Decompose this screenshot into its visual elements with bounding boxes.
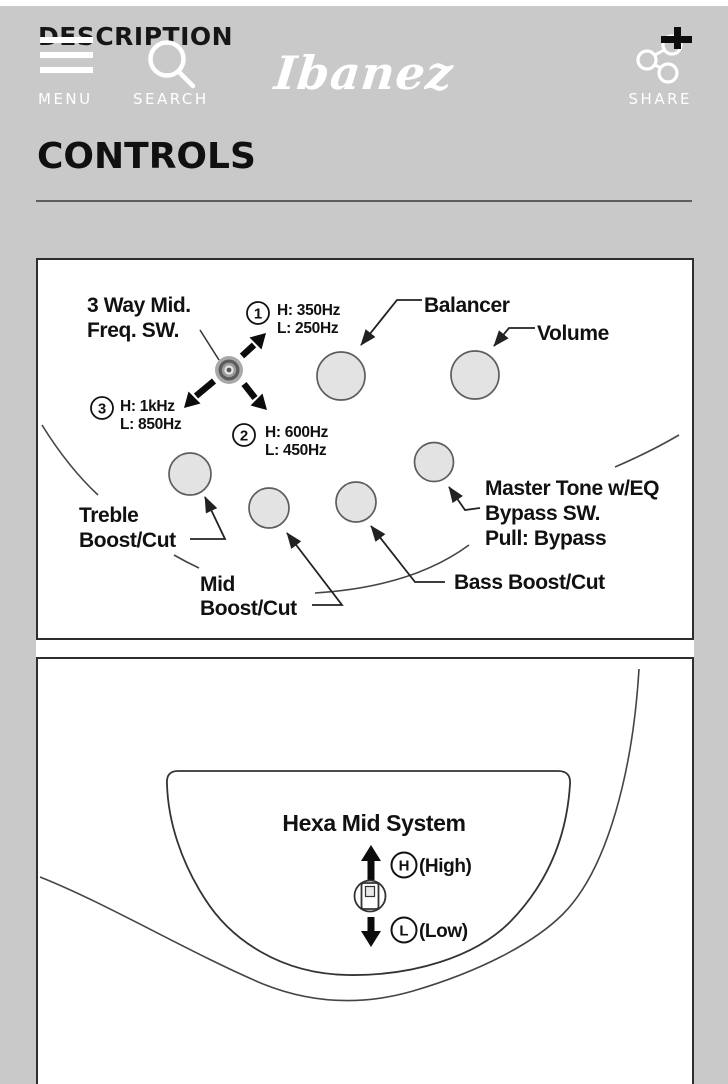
- treble-knob: [169, 453, 211, 495]
- balancer-knob: [317, 352, 365, 400]
- svg-text:(Low): (Low): [419, 921, 468, 942]
- search-button-label[interactable]: SEARCH: [133, 90, 209, 108]
- share-icon[interactable]: [638, 36, 681, 82]
- up-arrow: [361, 845, 381, 880]
- balancer-label: Balancer: [424, 294, 510, 317]
- controls-diagram-panel: 1 H: 350Hz L: 250Hz 3 H: 1kHz L: 850Hz 2…: [36, 258, 694, 640]
- position-1: 1 H: 350Hz L: 250Hz: [247, 302, 341, 337]
- share-button-label[interactable]: SHARE: [629, 90, 692, 108]
- position-3: 3 H: 1kHz L: 850Hz: [91, 397, 182, 433]
- svg-text:Freq. SW.: Freq. SW.: [87, 319, 179, 342]
- switch-leader-line: [200, 330, 219, 360]
- position-2: 2 H: 600Hz L: 450Hz: [233, 424, 329, 459]
- bass-knob: [336, 482, 376, 522]
- svg-text:Bypass SW.: Bypass SW.: [485, 502, 600, 525]
- hexa-mid-diagram: Hexa Mid System H (High): [38, 659, 692, 1082]
- down-arrow: [361, 917, 381, 947]
- bass-label: Bass Boost/Cut: [454, 571, 605, 594]
- svg-text:L: L: [399, 923, 408, 940]
- master-tone-knob: [415, 443, 454, 482]
- svg-text:L: 250Hz: L: 250Hz: [277, 320, 339, 337]
- mid-label: Mid: [200, 573, 235, 596]
- high-marker: H (High): [392, 853, 472, 878]
- ibanez-logo[interactable]: Ibanez: [263, 46, 465, 100]
- page-title: CONTROLS: [37, 136, 256, 177]
- volume-label: Volume: [537, 322, 609, 345]
- controls-diagram: 1 H: 350Hz L: 250Hz 3 H: 1kHz L: 850Hz 2…: [38, 260, 692, 638]
- hexa-mid-panel: Hexa Mid System H (High): [36, 657, 694, 1084]
- svg-text:H: 1kHz: H: 1kHz: [120, 398, 175, 415]
- menu-button-label[interactable]: MENU: [38, 90, 93, 108]
- master-tone-label: Master Tone w/EQ: [485, 477, 659, 500]
- freq-switch-label: 3 Way Mid.: [87, 294, 191, 317]
- svg-text:Boost/Cut: Boost/Cut: [200, 597, 297, 620]
- treble-label: Treble: [79, 504, 138, 527]
- mid-select-switch-icon: [355, 881, 386, 912]
- content-column: 1 H: 350Hz L: 250Hz 3 H: 1kHz L: 850Hz 2…: [36, 258, 694, 1080]
- svg-text:H: H: [399, 858, 410, 875]
- svg-text:H: 600Hz: H: 600Hz: [265, 424, 329, 441]
- mid-knob: [249, 488, 289, 528]
- leader-lines: [190, 300, 535, 605]
- low-marker: L (Low): [392, 918, 468, 943]
- plus-icon: [661, 27, 692, 49]
- mid-freq-switch: [215, 356, 243, 384]
- svg-text:L: 850Hz: L: 850Hz: [120, 416, 182, 433]
- volume-knob: [451, 351, 499, 399]
- page-overlay-title: DESCRIPTION: [38, 22, 233, 51]
- title-divider: [36, 200, 692, 202]
- svg-text:L: 450Hz: L: 450Hz: [265, 442, 327, 459]
- svg-text:3: 3: [98, 401, 106, 418]
- svg-text:H: 350Hz: H: 350Hz: [277, 302, 341, 319]
- svg-text:2: 2: [240, 428, 248, 445]
- svg-text:Pull: Bypass: Pull: Bypass: [485, 527, 606, 550]
- hexa-mid-title: Hexa Mid System: [282, 810, 465, 836]
- svg-text:Boost/Cut: Boost/Cut: [79, 529, 176, 552]
- page: { "header": { "overlay_title": "DESCRIPT…: [0, 0, 728, 1080]
- svg-text:1: 1: [254, 306, 262, 323]
- top-strip: [0, 0, 728, 6]
- svg-text:(High): (High): [419, 856, 472, 877]
